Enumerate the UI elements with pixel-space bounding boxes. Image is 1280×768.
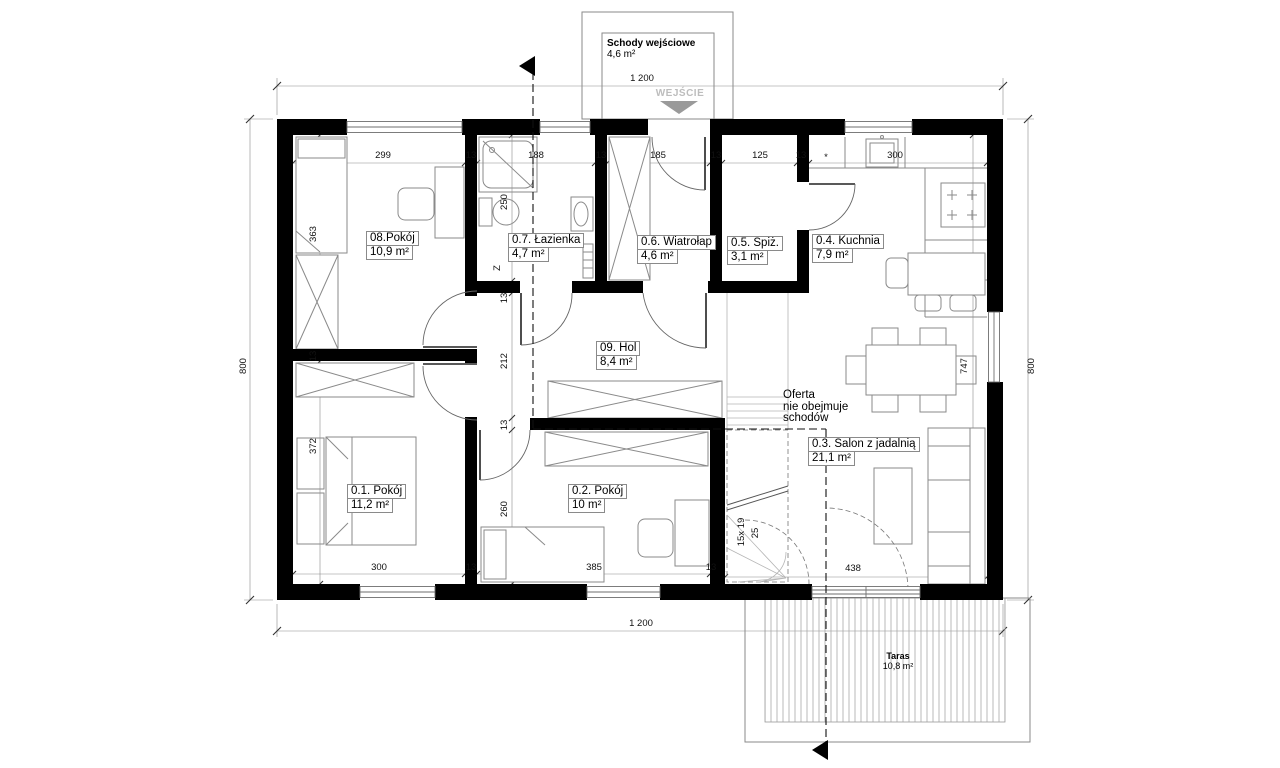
dim-left-2: 372 [308, 438, 319, 454]
dim-top-4: 185 [650, 150, 666, 161]
terrace-name: Taras [859, 651, 937, 661]
window-room08 [347, 122, 462, 133]
dim-bottom-0: 300 [371, 562, 387, 573]
room-name: 08.Pokój [366, 231, 419, 246]
note-line: schodów [783, 413, 848, 425]
dim-top-5: 13 [711, 150, 722, 161]
room-area: 11,2 m² [347, 498, 393, 513]
bathroom-radiator [583, 244, 593, 278]
patio-door [812, 587, 920, 598]
dim-salon-door: 438 [845, 563, 861, 574]
room-label-07: 0.7. Łazienka 4,7 m² [508, 233, 584, 262]
dim-top-9: 300 [887, 150, 903, 161]
furniture [296, 136, 987, 591]
dim-bottom-total: 1 200 [629, 618, 653, 629]
room-label-08: 08.Pokój 10,9 m² [366, 231, 419, 260]
entry-stoop [582, 12, 733, 119]
dim-top-total: 1 200 [630, 73, 654, 84]
dim-top-6: 125 [752, 150, 768, 161]
section-arrow-bottom [812, 740, 828, 760]
dim-bottom-3: 13 [706, 562, 717, 573]
bed-room02 [481, 527, 604, 582]
wardrobe-hall [548, 381, 722, 418]
window-room02 [587, 587, 660, 598]
stairs-note: Oferta nie obejmuje schodów [783, 390, 848, 425]
bathroom-sink [571, 197, 593, 231]
room-area: 7,9 m² [812, 248, 853, 263]
floor-plan-page: 1 200 1 200 800 800 299 13 188 13 185 13… [0, 0, 1280, 768]
room-label-06: 0.6. Wiatrołap 4,6 m² [637, 235, 716, 264]
dim-left-total: 800 [238, 358, 249, 374]
wardrobe-room08 [296, 255, 338, 349]
room-name: 0.2. Pokój [568, 484, 627, 499]
window-bathroom [540, 122, 590, 133]
dim-top-0: 299 [375, 150, 391, 161]
room-label-09: 09. Hol 8,4 m² [596, 341, 640, 370]
dim-salon-height: 747 [959, 358, 970, 374]
room-name: 0.1. Pokój [347, 484, 406, 499]
dim-top-2: 188 [528, 150, 544, 161]
room-area: 10 m² [568, 498, 605, 513]
entry-name: Schody wejściowe [607, 38, 695, 49]
wardrobe-room02 [545, 432, 708, 466]
door-room08 [423, 291, 477, 347]
bath-appliance-label: Z [492, 265, 503, 271]
room-label-03: 0.3. Salon z jadalnią 21,1 m² [808, 437, 920, 466]
room-area: 4,6 m² [637, 249, 678, 264]
room-name: 0.3. Salon z jadalnią [808, 437, 920, 452]
door-bathroom [521, 293, 572, 345]
stove [941, 183, 985, 227]
room-label-04: 0.4. Kuchnia 7,9 m² [812, 234, 884, 263]
room-label-01: 0.1. Pokój 11,2 m² [347, 484, 406, 513]
window-room01 [360, 587, 435, 598]
coffee-table [874, 468, 912, 544]
room-name: 09. Hol [596, 341, 640, 356]
dim-top-7: 13 [796, 150, 807, 161]
window-kitchen [845, 122, 912, 133]
stairs-width-label: 25 [750, 528, 761, 539]
room-name: 0.6. Wiatrołap [637, 235, 716, 250]
entry-door [652, 137, 705, 190]
dim-bottom-1: 13 [466, 562, 477, 573]
dim-top-1: 13 [466, 150, 477, 161]
bed-room08 [296, 137, 347, 253]
dim-top-3: 13 [596, 150, 607, 161]
dim-left-0: 363 [308, 226, 319, 242]
entry-area: 4,6 m² [607, 49, 695, 60]
dim-center-1: 13 [499, 293, 510, 304]
wardrobe-room01 [296, 363, 414, 397]
dim-center-4: 260 [499, 501, 510, 517]
dim-center-3: 13 [499, 420, 510, 431]
kitchen-table [886, 253, 985, 311]
room-area: 3,1 m² [727, 250, 768, 265]
dim-bottom-2: 385 [586, 562, 602, 573]
room-area: 4,7 m² [508, 247, 549, 262]
door-wiatrolap-hall [643, 293, 706, 348]
dim-left-1: 13 [308, 351, 319, 362]
terrace-area: 10,8 m² [859, 661, 937, 671]
desk-room08 [398, 167, 464, 238]
dim-center-2: 212 [499, 353, 510, 369]
window-salon-side [989, 312, 1000, 382]
dining-table [846, 328, 976, 412]
room-area: 8,4 m² [596, 355, 637, 370]
room-name: 0.5. Spiż. [727, 236, 783, 251]
room-area: 21,1 m² [808, 451, 855, 466]
shower [479, 137, 537, 192]
door-room02 [480, 430, 530, 480]
room-name: 0.4. Kuchnia [812, 234, 884, 249]
entry-arrow-icon [660, 101, 698, 114]
note-line: Oferta [783, 390, 848, 402]
entrance-direction-label: WEJŚCIE [645, 88, 715, 99]
entry-label: Schody wejściowe 4,6 m² [607, 38, 695, 60]
room-label-05: 0.5. Spiż. 3,1 m² [727, 236, 783, 265]
terrace-label: Taras 10,8 m² [859, 651, 937, 671]
section-arrow-top [519, 56, 535, 76]
door-room01 [423, 364, 477, 420]
dim-right-total: 800 [1026, 358, 1037, 374]
dim-top-8: * [824, 152, 828, 163]
stairs-count-label: 15x 19 [736, 518, 747, 547]
floor-plan-drawing: 1 200 1 200 800 800 299 13 188 13 185 13… [0, 0, 1280, 768]
dim-center-0: 250 [499, 194, 510, 210]
sofa [928, 428, 985, 584]
desk-room02 [638, 500, 709, 566]
door-pantry [809, 184, 855, 230]
room-name: 0.7. Łazienka [508, 233, 584, 248]
room-area: 10,9 m² [366, 245, 413, 260]
room-label-02: 0.2. Pokój 10 m² [568, 484, 627, 513]
